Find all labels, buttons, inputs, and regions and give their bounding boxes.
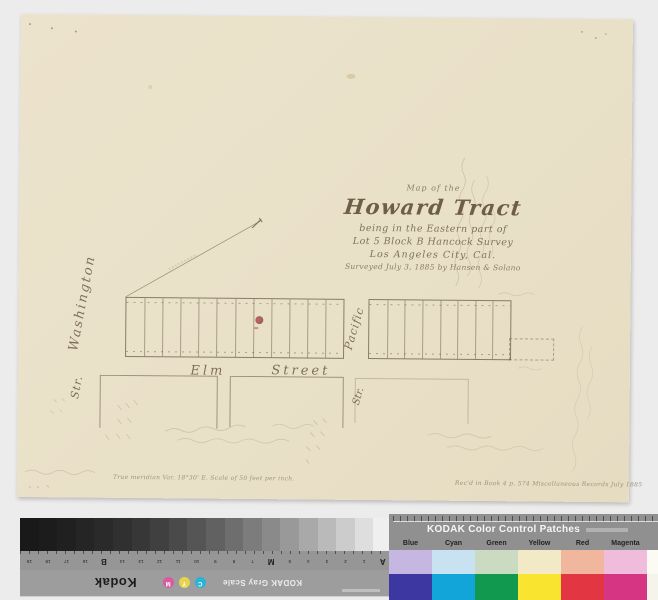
- kodak-logo: Kodak: [94, 576, 136, 591]
- block-outline-c: [354, 378, 468, 424]
- survey-diagonal-line: [126, 220, 261, 298]
- pencil-scribble: [518, 367, 542, 370]
- gray-step: [318, 518, 337, 551]
- color-patch-dark-cyan: [432, 574, 475, 600]
- color-patch-light-magenta: [604, 550, 647, 574]
- gray-step: [336, 518, 355, 551]
- gray-step: [206, 518, 225, 551]
- plat-extension-dashed: [509, 338, 554, 360]
- color-patch-dark-blue: [389, 574, 432, 600]
- calibration-dots: CYM: [163, 578, 211, 589]
- gray-index-label: 18: [39, 559, 58, 564]
- paper-stain: [346, 74, 355, 79]
- gray-step: [187, 518, 206, 551]
- color-column-label: White: [647, 540, 658, 547]
- faint-handwriting: [572, 327, 583, 471]
- scanned-map-scene: Map of the Howard Tract being in the Eas…: [0, 0, 658, 600]
- pencil-dots: [29, 485, 49, 488]
- pencil-scribble: [427, 434, 491, 439]
- gray-index-label: 13: [132, 559, 151, 564]
- gray-step: [280, 518, 299, 551]
- gray-step: [262, 518, 281, 551]
- color-panel-fine-print: [586, 528, 628, 532]
- cc-light-row: [389, 550, 658, 574]
- lot-line: [440, 301, 442, 359]
- calibration-dot-c: C: [195, 578, 206, 589]
- gray-index-label: 1: [355, 559, 374, 564]
- paper-stain: [148, 85, 152, 89]
- color-patch-dark-green: [475, 574, 518, 600]
- gray-index-label: 16: [76, 559, 95, 564]
- gray-index-label: 12: [150, 559, 169, 564]
- color-column-label: Red: [561, 540, 604, 547]
- recorder-stamp-mark: [254, 327, 258, 329]
- lot-line: [198, 299, 200, 357]
- cc-labels-row: BlueCyanGreenYellowRedMagentaWhite: [389, 537, 658, 550]
- plat-strip-right: [368, 299, 512, 360]
- kodak-color-control-patches: KODAK Color Control Patches BlueCyanGree…: [389, 514, 658, 600]
- gray-step: [132, 518, 151, 551]
- color-patch-light-blue: [389, 550, 432, 574]
- gray-index-label: 17: [57, 559, 76, 564]
- lot-line: [271, 299, 273, 357]
- color-panel-title: KODAK Color Control Patches: [427, 524, 580, 535]
- lot-line: [144, 298, 146, 356]
- color-patch-light-white: [647, 550, 658, 574]
- color-patch-light-cyan: [432, 550, 475, 574]
- title-line-2: Howard Tract: [267, 193, 600, 221]
- calibration-dot-m: M: [163, 578, 174, 589]
- gray-index-label: 9: [206, 559, 225, 564]
- pen-flag-mark: [252, 218, 262, 228]
- gray-step: [150, 518, 169, 551]
- lot-line: [325, 300, 327, 358]
- gray-index-label: 3: [318, 559, 337, 564]
- gray-index-row: A12345M7891011121314B16171819: [20, 554, 392, 569]
- gray-step: [76, 518, 95, 551]
- gray-index-label: B: [95, 557, 114, 566]
- gray-index-label: 4: [299, 559, 318, 564]
- dimension-note-smudge: [499, 293, 535, 296]
- gray-index-label: 19: [20, 559, 39, 564]
- lot-line: [162, 298, 164, 356]
- gray-index-label: 14: [113, 559, 132, 564]
- title-line-4: Lot 5 Block B Hancock Survey: [268, 235, 598, 249]
- lot-line: [457, 301, 459, 359]
- gray-step: [94, 518, 113, 551]
- gray-step: [225, 518, 244, 551]
- gray-scale-footer: KODAK Gray Scale CYM Kodak: [20, 570, 392, 597]
- color-column-label: Cyan: [432, 540, 475, 547]
- faint-handwriting: [587, 347, 593, 419]
- paper-specks: [581, 31, 583, 33]
- title-line-5: Los Angeles City, Cal.: [268, 248, 598, 262]
- pencil-scribble: [177, 438, 289, 443]
- gray-step: [299, 518, 318, 551]
- gray-scale-label: KODAK Gray Scale: [223, 579, 302, 588]
- map-title-block: Map of the Howard Tract being in the Eas…: [268, 182, 599, 273]
- block-outline-b: [229, 376, 343, 428]
- gray-step: [355, 518, 374, 551]
- pencil-tree-marks: [51, 398, 65, 413]
- pin-holes: [29, 23, 31, 25]
- title-line-3: being in the Eastern part of: [268, 222, 598, 236]
- recorder-stamp: [255, 316, 263, 324]
- cc-dark-row: [389, 574, 658, 600]
- color-column-label: Magenta: [604, 540, 647, 547]
- lot-line: [216, 299, 218, 357]
- gray-index-label: M: [262, 557, 281, 566]
- color-patch-dark-white: [647, 574, 658, 600]
- color-patch-dark-red: [561, 574, 604, 600]
- color-patch-light-green: [475, 550, 518, 574]
- lot-line: [387, 300, 389, 358]
- gray-index-label: 7: [243, 559, 262, 564]
- lot-line: [492, 301, 494, 359]
- color-patch-light-yellow: [518, 550, 561, 574]
- lot-line: [404, 300, 406, 358]
- gray-index-label: 10: [187, 559, 206, 564]
- calibration-dot-y: Y: [179, 578, 190, 589]
- gray-step: [20, 518, 39, 551]
- color-patch-dark-magenta: [604, 574, 647, 600]
- gray-step: [113, 518, 132, 551]
- gray-step: [169, 518, 188, 551]
- gray-index-label: 11: [169, 559, 188, 564]
- color-patch-light-red: [561, 550, 604, 574]
- gray-scale-fine-print: [342, 589, 380, 592]
- gray-index-label: 2: [336, 559, 355, 564]
- kodak-gray-scale-strip: A12345M7891011121314B16171819 KODAK Gray…: [20, 518, 392, 597]
- pencil-scribble: [25, 470, 95, 475]
- lot-line: [475, 301, 477, 359]
- color-column-label: Yellow: [518, 540, 561, 547]
- pencil-scribble: [447, 446, 543, 451]
- color-patch-dark-yellow: [518, 574, 561, 600]
- lot-line: [235, 299, 237, 357]
- lot-line: [289, 299, 291, 357]
- plat-strip-left: [125, 297, 345, 359]
- diagonal-label-smudge: [169, 254, 197, 269]
- gray-index-label: 8: [225, 559, 244, 564]
- color-column-label: Blue: [389, 540, 432, 547]
- title-line-1: Map of the: [268, 182, 598, 194]
- map-paper: Map of the Howard Tract being in the Eas…: [17, 14, 633, 502]
- gray-step: [57, 518, 76, 551]
- color-column-label: Green: [475, 540, 518, 547]
- block-outline-a: [99, 375, 217, 429]
- gray-index-label: 5: [280, 559, 299, 564]
- gray-step: [39, 518, 58, 551]
- gray-step: [243, 518, 262, 551]
- lot-line: [180, 298, 182, 356]
- gray-steps-row: [20, 518, 392, 551]
- color-panel-title-row: KODAK Color Control Patches: [389, 522, 658, 537]
- lot-line: [307, 300, 309, 358]
- lot-line: [422, 301, 424, 359]
